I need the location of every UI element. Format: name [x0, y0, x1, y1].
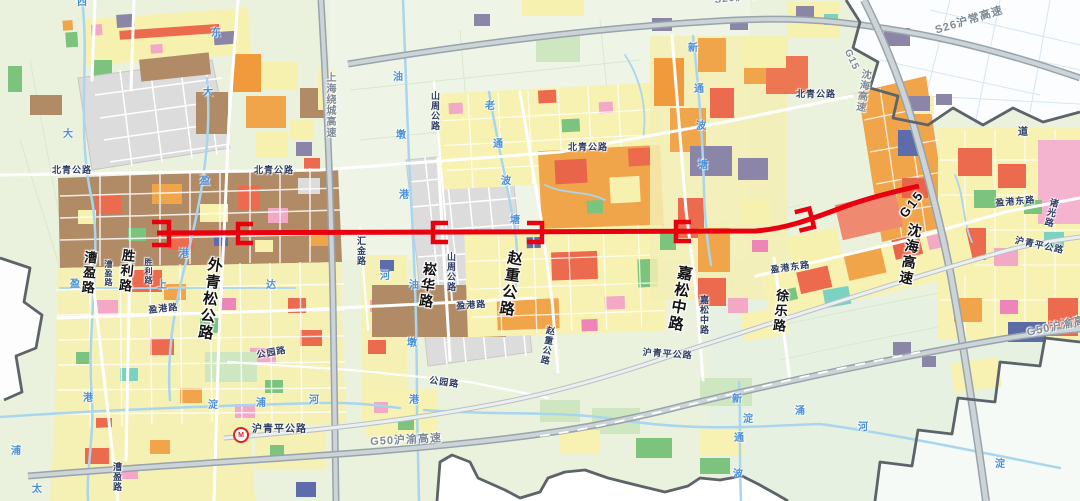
urban-planning-map: M 漕盈路胜利路外青松公路崧华路赵重公路嘉松中路徐乐路G15沈海高速北青公路北青… [0, 0, 1080, 501]
map-canvas [0, 0, 1080, 501]
metro-logo-glyph: M [238, 432, 244, 439]
metro-station-icon: M [233, 427, 249, 443]
